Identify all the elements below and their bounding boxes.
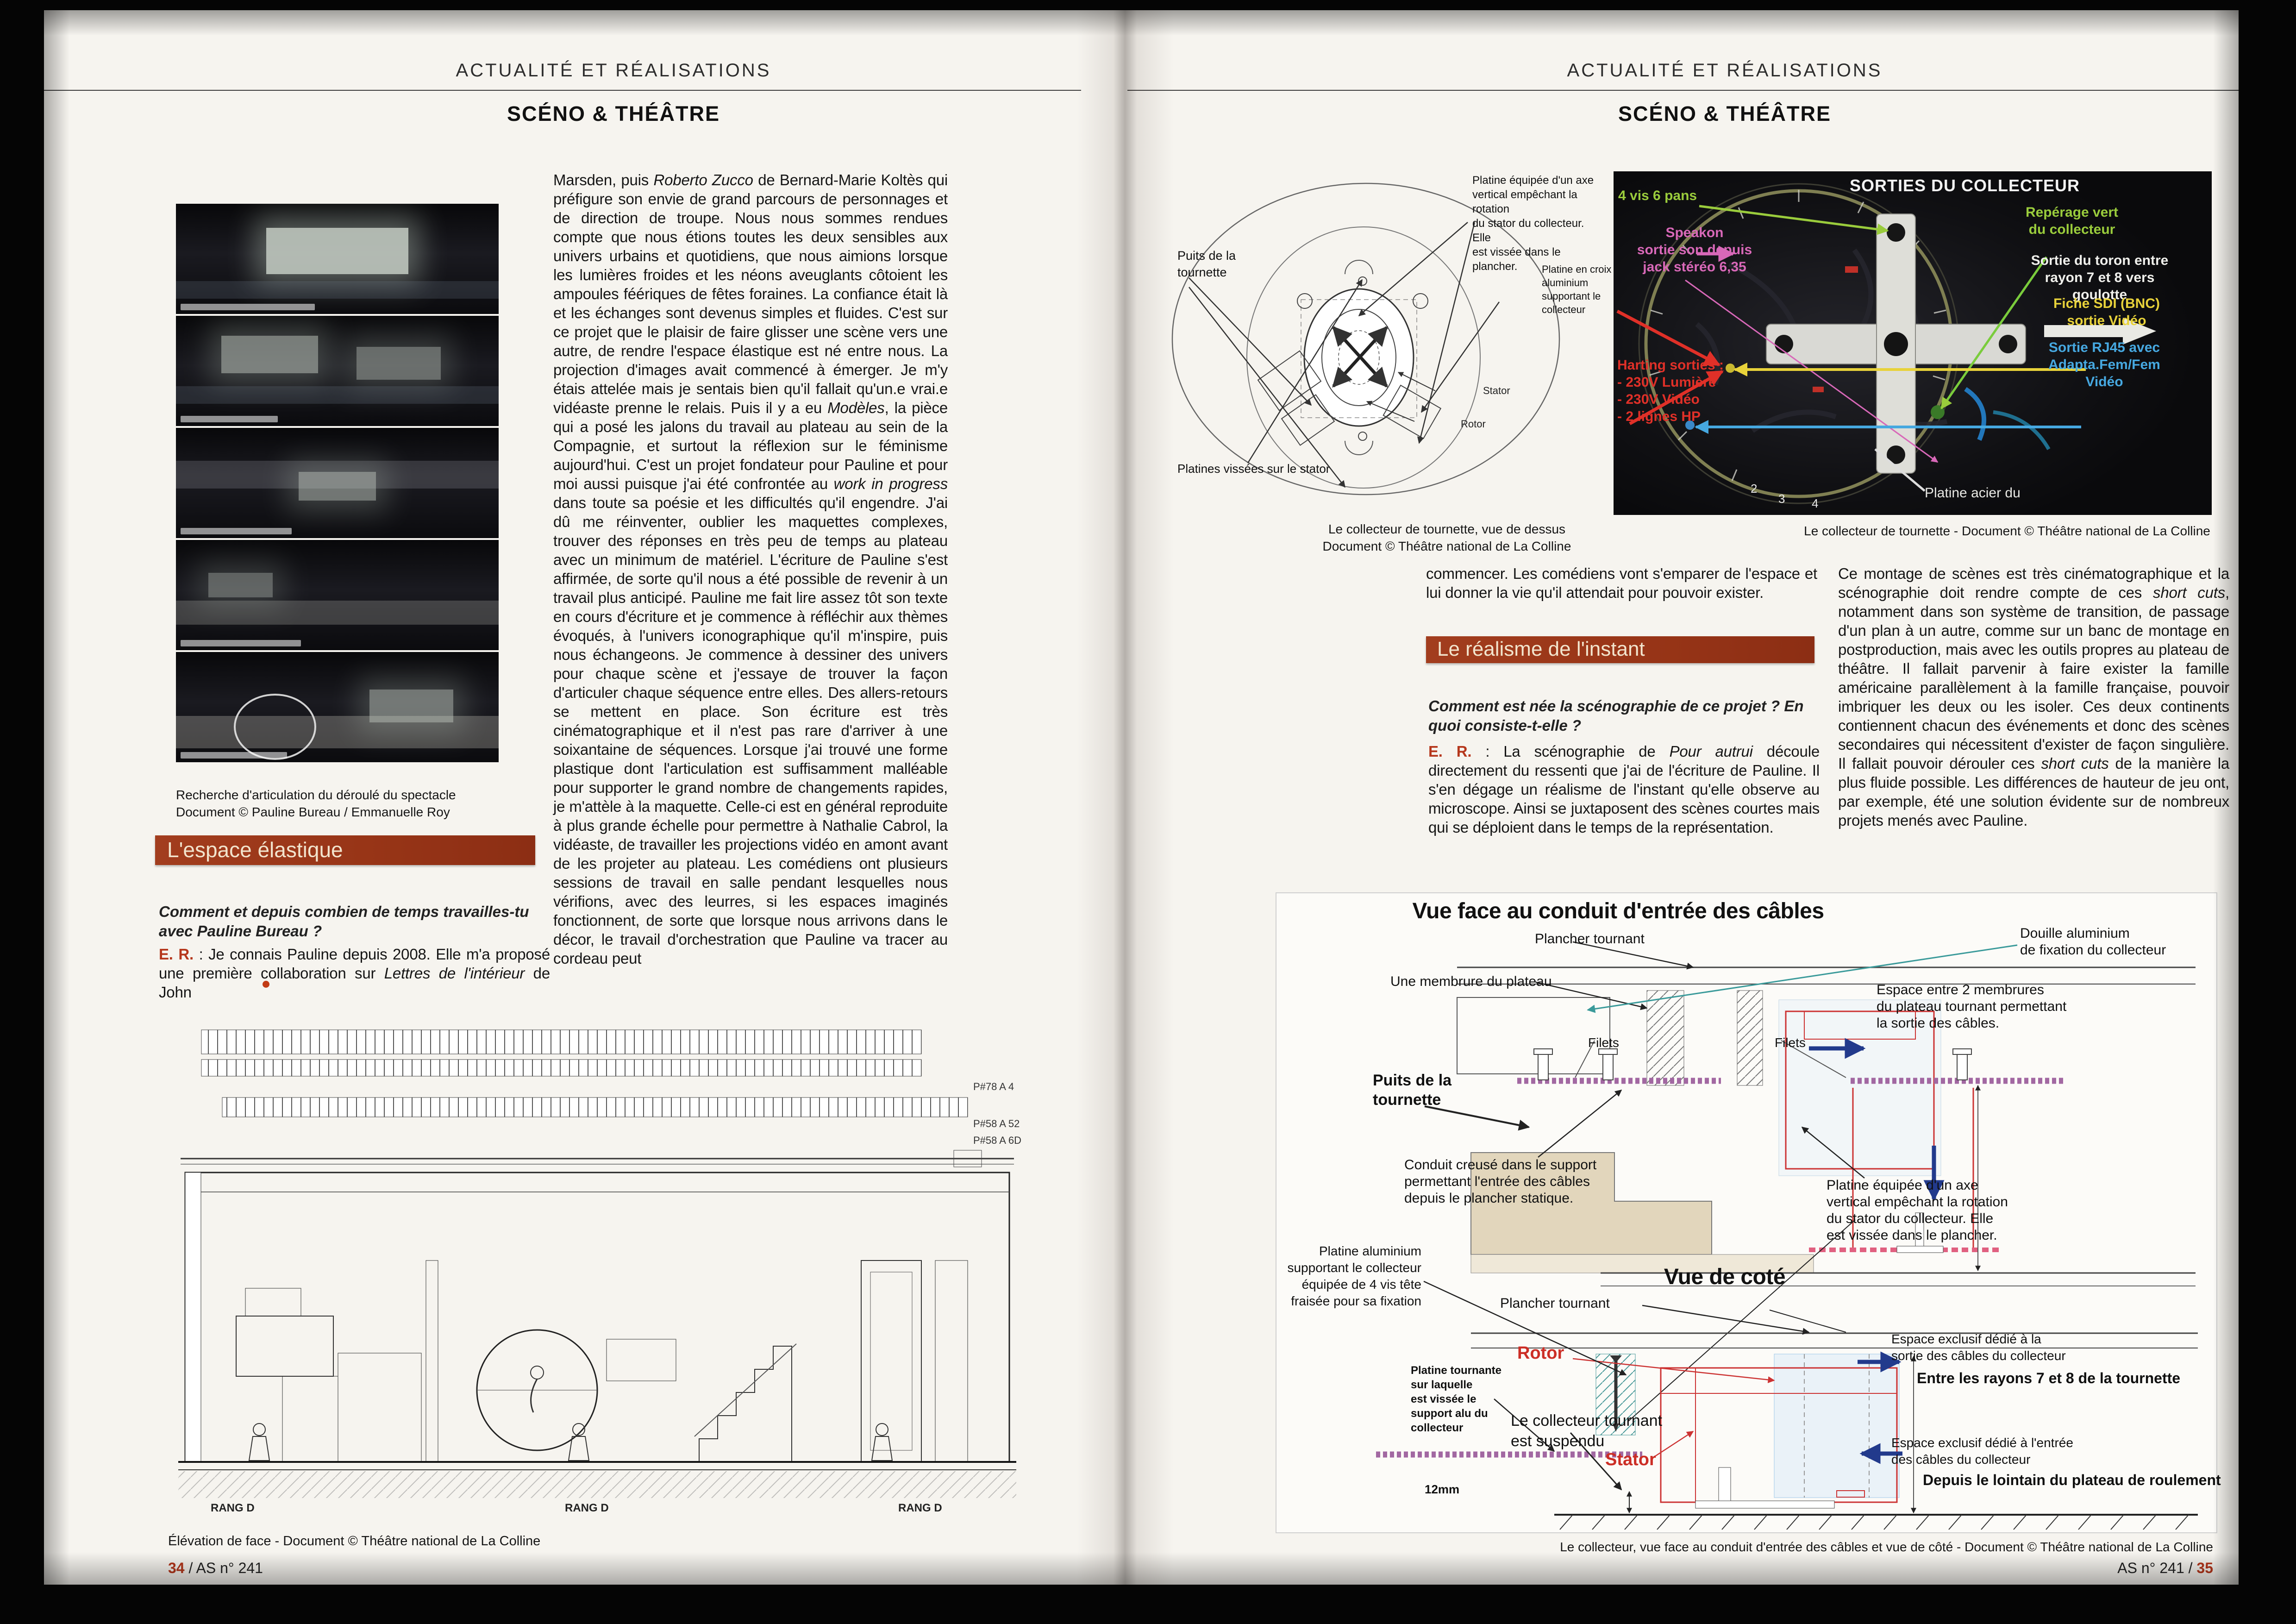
interview-paragraph: Marsden, puis Roberto Zucco de Bernard-M…	[553, 170, 948, 968]
bolt-hole	[1297, 294, 1312, 308]
bottom-shadow	[44, 1552, 2239, 1585]
work-title: Lettres de l'intérieur	[384, 965, 525, 982]
flybar-tag: P#58 A 6D	[973, 1135, 1021, 1146]
figure-silhouette	[872, 1423, 892, 1461]
rang-label: RANG D	[211, 1502, 255, 1514]
label-12mm: 12mm	[1425, 1481, 1459, 1498]
flybar-tag: P#58 A 52	[973, 1118, 1020, 1129]
set-furniture	[236, 1316, 333, 1376]
stage-elevation-drawing: P#78 A 4 P#58 A 52 P#58 A 6D	[167, 1020, 1028, 1522]
stage-band	[176, 386, 499, 404]
set-furniture	[245, 1288, 301, 1316]
page-kicker: ACTUALITÉ ET RÉALISATIONS	[229, 60, 998, 81]
red-connector	[1845, 266, 1858, 273]
leader-line	[1419, 222, 1475, 443]
bolt-hole	[1358, 432, 1367, 440]
diagram-title-side: Vue de coté	[1563, 1264, 1887, 1290]
photos-caption: Recherche d'articulation du déroulé du s…	[176, 786, 583, 821]
door-frame	[935, 1260, 968, 1462]
stage-photo	[176, 428, 499, 538]
label-platine-axe: Platine équipée d'un axe vertical empêch…	[1827, 1177, 2008, 1244]
label-reperage: Repérage vert du collecteur	[2005, 204, 2139, 238]
console-table	[607, 1339, 676, 1381]
section-heading-espace-elastique: L'espace élastique	[155, 835, 535, 865]
page-number: 35	[2196, 1560, 2213, 1576]
label-filets: Filets	[1775, 1035, 1806, 1051]
set-post	[426, 1260, 438, 1462]
rim-number: 2	[1751, 482, 1757, 495]
answer-text: : La scénographie de	[1471, 743, 1669, 760]
term-italic: short cuts	[2041, 755, 2109, 772]
term-italic: short cuts	[2153, 584, 2225, 601]
stage-photo	[176, 316, 499, 426]
interview-question: Comment et depuis combien de temps trava…	[159, 902, 550, 941]
page-footer: 34 / AS n° 241	[168, 1560, 263, 1577]
label-rj45: Sortie RJ45 avec Adapta.Fem/Fem Vidéo	[2035, 339, 2174, 390]
label-platine-axe: Platine équipée d'un axe vertical empêch…	[1472, 173, 1602, 274]
interview-question: Comment est née la scénographie de ce pr…	[1428, 696, 1820, 735]
cross-bolt	[1999, 335, 2017, 353]
red-dot-mark	[263, 981, 269, 988]
label-rotor: Rotor	[1517, 1345, 1564, 1361]
photo-mini-caption	[181, 304, 315, 310]
label-entre-rayons: Entre les rayons 7 et 8 de la tournette	[1917, 1370, 2180, 1386]
label-puits-tournette: Puits de la tournette	[1373, 1071, 1451, 1110]
stage-photo	[176, 204, 499, 314]
paragraph-text: , notamment dans son système de transiti…	[1838, 584, 2229, 772]
set-furniture	[282, 1376, 338, 1462]
drawing-caption: Élévation de face - Document © Théâtre n…	[168, 1533, 816, 1550]
stage-photo	[176, 652, 499, 762]
interview-paragraph: Ce montage de scènes est très cinématogr…	[1838, 564, 2229, 830]
magazine-spread-scan: ACTUALITÉ ET RÉALISATIONS SCÉNO & THÉÂTR…	[0, 0, 2296, 1624]
figure-silhouette	[249, 1423, 269, 1461]
label-filets: Filets	[1588, 1035, 1619, 1051]
center-bolt	[1884, 332, 1908, 356]
flybar-band	[222, 1097, 968, 1117]
page-kicker: ACTUALITÉ ET RÉALISATIONS	[1340, 60, 2109, 81]
membrure-section	[1647, 991, 1684, 1085]
label-puits-tournette: Puits de la tournette	[1177, 247, 1236, 281]
axis-pin	[1719, 1467, 1731, 1504]
section-title: SCÉNO & THÉÂTRE	[1340, 102, 2109, 126]
collector-volume	[1774, 1354, 1899, 1498]
stage-glow	[357, 347, 440, 380]
stage-glow	[299, 472, 376, 501]
left-shadow	[44, 10, 69, 1585]
axis-plate	[1897, 1246, 1943, 1253]
figure-body	[531, 1379, 537, 1412]
ground-hatch	[1560, 1515, 2189, 1530]
label-espace-sortie: Espace exclusif dédié à la sortie des câ…	[1891, 1331, 2066, 1364]
work-title: Pour autrui	[1670, 743, 1753, 760]
plate-notch	[1345, 260, 1373, 274]
top-shadow	[44, 10, 2239, 36]
interview-answer: E. R. : Je connais Pauline depuis 2008. …	[159, 945, 550, 1002]
term-italic: work in progress	[834, 475, 948, 492]
label-platine-alu: Platine aluminium supportant le collecte…	[1276, 1243, 1421, 1310]
stage-glow	[208, 573, 273, 597]
photo-title: SORTIES DU COLLECTEUR	[1850, 177, 2202, 194]
stair-rail	[694, 1344, 796, 1436]
label-rotor: Rotor	[1461, 418, 1486, 431]
stage-glow	[369, 690, 453, 722]
plate-notch	[1345, 441, 1373, 455]
paragraph-text: de Bernard-Marie Koltès qui préfigure so…	[553, 171, 948, 416]
label-douille: Douille aluminium de fixation du collect…	[2020, 925, 2166, 959]
figure-head	[531, 1366, 544, 1379]
photo-mini-caption	[181, 528, 292, 534]
rim-number: 4	[1812, 496, 1818, 510]
stage-glow	[266, 228, 408, 274]
stage-frame	[185, 1173, 1009, 1462]
bnc-connector	[1726, 364, 1735, 373]
stage-photo	[176, 540, 499, 650]
base-plate	[1695, 1501, 1834, 1508]
stage-band	[176, 281, 499, 299]
label-membrure: Une membrure du plateau	[1390, 973, 1552, 990]
rim-number: 3	[1778, 492, 1785, 506]
label-espace-entree: Espace exclusif dédié à l'entrée des câb…	[1891, 1435, 2073, 1468]
photo-mini-caption	[181, 416, 278, 422]
label-plancher-tournant: Plancher tournant	[1535, 931, 1645, 947]
leader-line	[1642, 1305, 1809, 1332]
diagram-title-face: Vue face au conduit d'entrée des câbles	[1396, 898, 1840, 924]
staircase	[699, 1346, 792, 1462]
issue-label: AS n° 241 /	[2117, 1560, 2196, 1576]
label-conduit: Conduit creusé dans le support permettan…	[1404, 1157, 1596, 1207]
column-intro: commencer. Les comédiens vont s'emparer …	[1426, 564, 1817, 602]
cross-bolt	[1887, 223, 1905, 242]
label-sdi: Fiche SDI (BNC) sortie Vidéo	[2035, 295, 2178, 329]
label-espace-membrures: Espace entre 2 membrures du plateau tour…	[1877, 982, 2066, 1032]
rang-label: RANG D	[898, 1502, 942, 1514]
bolt-hole	[1413, 294, 1428, 308]
label-plancher-tournant: Plancher tournant	[1500, 1295, 1610, 1312]
speaker-initials: E. R.	[159, 946, 194, 963]
section-title: SCÉNO & THÉÂTRE	[229, 102, 998, 126]
photo-caption: Le collecteur de tournette - Document © …	[1803, 522, 2211, 539]
left-wall	[185, 1173, 201, 1462]
page-footer: AS n° 241 / 35	[1979, 1560, 2213, 1577]
label-4-vis: 4 vis 6 pans	[1618, 187, 1697, 204]
photo-mini-caption	[181, 640, 301, 646]
work-title: Roberto Zucco	[654, 171, 753, 188]
red-connector	[1813, 387, 1824, 392]
chalk-circle	[234, 694, 316, 760]
figure-silhouette	[569, 1423, 589, 1461]
diagram-caption: Le collecteur de tournette, vue de dessu…	[1294, 520, 1600, 555]
diagram-caption: Le collecteur, vue face au conduit d'ent…	[1526, 1538, 2213, 1555]
stage-glow	[221, 336, 318, 373]
interview-answer: E. R. : La scénographie de Pour autrui d…	[1428, 742, 1820, 837]
flybar-band	[201, 1060, 921, 1076]
issue-label: / AS n° 241	[185, 1560, 263, 1576]
label-harting: Harting sorties : - 230V Lumière - 230V …	[1617, 357, 1724, 425]
label-speakon: Speakon sortie son depuis jack stéréo 6,…	[1620, 224, 1769, 276]
flybar-band	[201, 1030, 921, 1054]
leader-line	[1770, 1310, 1846, 1332]
rang-label: RANG D	[565, 1502, 609, 1514]
paragraph-text: dans toute sa poésie et les difficultés …	[553, 494, 948, 967]
photo-mini-caption	[181, 752, 287, 759]
set-furniture	[338, 1353, 421, 1462]
label-stator: Stator	[1483, 384, 1510, 397]
magazine-spread: ACTUALITÉ ET RÉALISATIONS SCÉNO & THÉÂTR…	[44, 10, 2239, 1585]
label-platine-acier: Platine acier du	[1925, 485, 2021, 501]
stage-band	[176, 601, 499, 625]
leader-line	[1538, 1090, 1621, 1157]
label-depuis-lointain: Depuis le lointain du plateau de rouleme…	[1923, 1472, 2221, 1488]
label-stator: Stator	[1605, 1451, 1656, 1468]
paragraph-text: Marsden, puis	[553, 171, 654, 188]
flybar-tag: P#78 A 4	[973, 1081, 1014, 1092]
work-title: Modèles	[827, 399, 884, 416]
label-collecteur-suspendu: Le collecteur tournant est suspendu	[1511, 1411, 1662, 1451]
floor-hatch	[178, 1471, 1016, 1498]
section-heading-realisme: Le réalisme de l'instant	[1426, 636, 1814, 663]
header-rule	[1127, 90, 2239, 91]
membrure-section	[1737, 991, 1763, 1085]
door-panel	[870, 1272, 912, 1450]
page-number: 34	[168, 1560, 185, 1576]
label-platine-tournante: Platine tournante sur laquelle est vissé…	[1411, 1363, 1501, 1435]
header-rule	[44, 90, 1081, 91]
label-platines-stator: Platines vissées sur le stator	[1177, 460, 1330, 477]
speaker-initials: E. R.	[1428, 743, 1471, 760]
membrure-block	[1457, 997, 1610, 1074]
